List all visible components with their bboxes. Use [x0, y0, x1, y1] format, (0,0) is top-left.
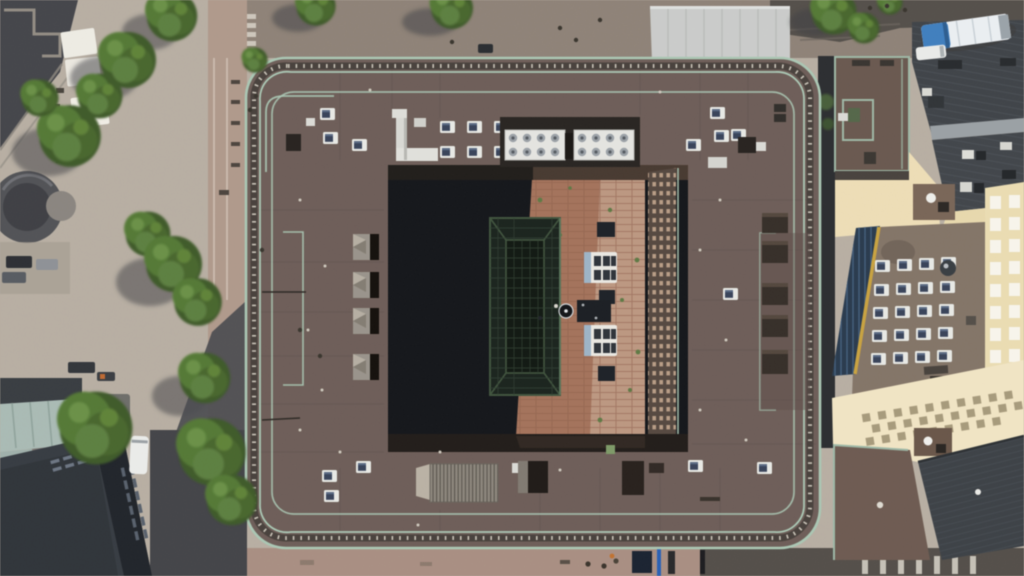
aerial-photo: [0, 0, 1024, 576]
film-grain: [0, 0, 1024, 576]
aerial-photo-canvas: [0, 0, 1024, 576]
